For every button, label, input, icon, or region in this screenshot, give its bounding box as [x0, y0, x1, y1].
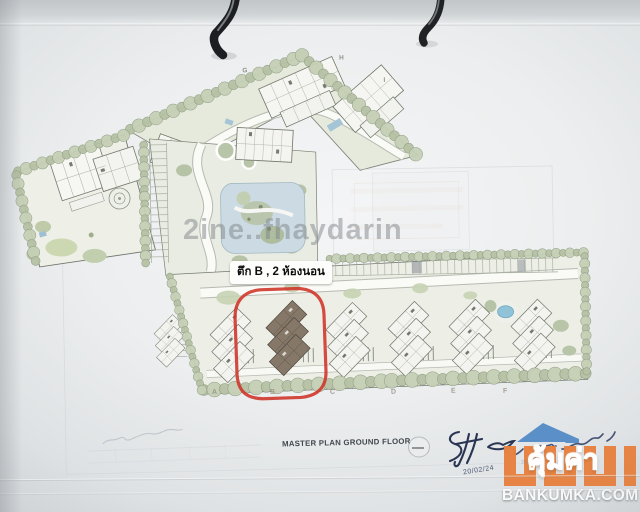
small-round-pool — [497, 306, 513, 318]
building-label-g: G — [242, 67, 247, 74]
binder-ring-icon — [214, 0, 236, 55]
binder-rings — [211, 0, 441, 60]
photo-shadow-edge — [0, 0, 22, 512]
building-label-h: H — [339, 55, 344, 62]
building-label-a: A — [212, 389, 217, 396]
building-b-label-box: ตึก B , 2 ห้องนอน — [230, 261, 332, 284]
building-label-f: F — [503, 388, 508, 395]
watermark-text: 2ine..fhaydarin — [183, 214, 403, 247]
binder-photo-master-plan: G H I A B C D E F — [0, 0, 640, 512]
garden-swirl — [217, 141, 235, 159]
building-label-i: I — [383, 77, 385, 84]
clubhouse-center — [236, 127, 294, 162]
pencil-scribble — [103, 429, 183, 444]
amenity-strip — [149, 126, 318, 276]
building-label-d: D — [391, 389, 396, 396]
site-plan-drawing: G H I A B C D E F — [0, 0, 640, 512]
building-label-b: B — [270, 389, 275, 396]
building-label-c: C — [330, 389, 335, 396]
building-label-e: E — [451, 388, 456, 395]
